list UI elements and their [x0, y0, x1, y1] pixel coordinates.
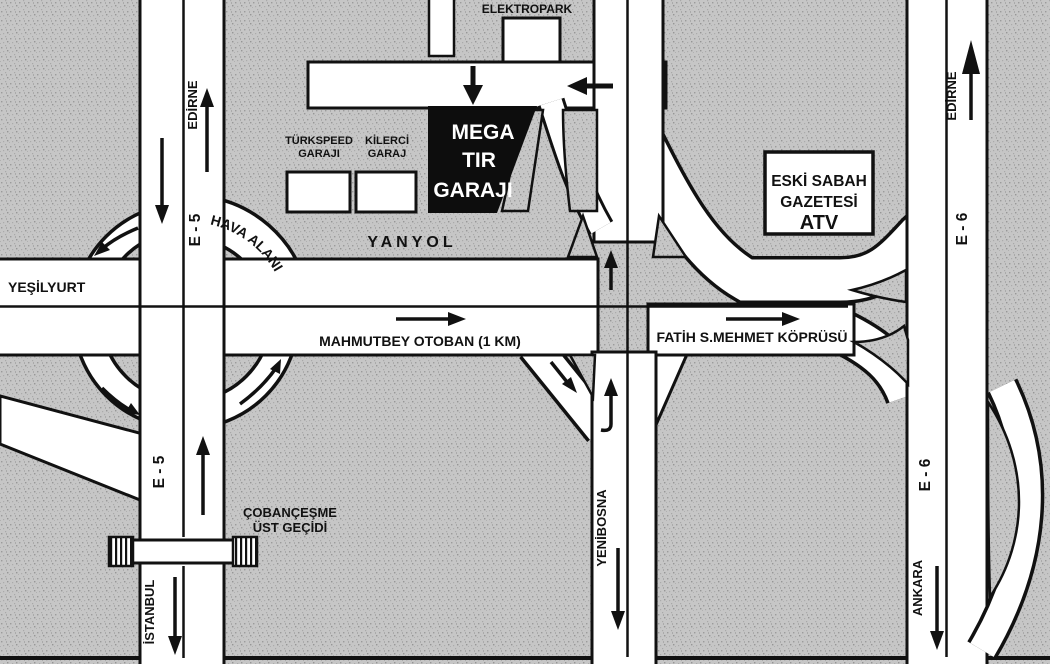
label-eski-2: GAZETESİ — [780, 194, 858, 211]
label-e5-lower: E - 5 — [151, 455, 168, 488]
label-e6-lower: E - 6 — [917, 458, 934, 491]
label-tir: TIR — [462, 149, 496, 172]
elektropark-building — [503, 18, 560, 62]
label-edirne-e6: EDİRNE — [944, 71, 959, 120]
map-canvas: ELEKTROPARK TÜRKSPEED GARAJI KİLERCİ GAR… — [0, 0, 1050, 664]
road-map-drawing: ELEKTROPARK TÜRKSPEED GARAJI KİLERCİ GAR… — [0, 0, 1050, 664]
label-eski-3: ATV — [800, 212, 839, 234]
label-yenibosna: YENİBOSNA — [594, 489, 609, 567]
label-cobancesme-1: ÇOBANÇEŞME — [243, 505, 337, 520]
label-edirne-e5: EDİRNE — [185, 80, 200, 129]
label-kilerci-1: KİLERCİ — [365, 134, 409, 147]
label-istanbul: İSTANBUL — [142, 580, 157, 645]
cobancesme-overpass — [109, 537, 257, 566]
label-elektropark: ELEKTROPARK — [482, 2, 573, 16]
label-yanyol: YANYOL — [367, 234, 456, 251]
top-edge-road-stub — [429, 0, 454, 56]
label-yesilyurt: YEŞİLYURT — [8, 279, 86, 295]
label-garaji: GARAJI — [433, 179, 512, 202]
kilerci-building — [356, 172, 416, 212]
label-fatih: FATİH S.MEHMET KÖPRÜSÜ — [656, 329, 847, 345]
turkspeed-building — [287, 172, 350, 212]
label-mahmutbey: MAHMUTBEY OTOBAN (1 KM) — [319, 333, 521, 349]
label-mega: MEGA — [452, 121, 515, 144]
label-turkspeed-2: GARAJI — [298, 148, 340, 160]
label-ankara: ANKARA — [910, 559, 925, 616]
label-eski-1: ESKİ SABAH — [771, 173, 867, 190]
label-turkspeed-1: TÜRKSPEED — [285, 134, 353, 147]
label-cobancesme-2: ÜST GEÇİDİ — [253, 520, 327, 535]
label-e5-upper: E - 5 — [187, 213, 204, 246]
label-kilerci-2: GARAJ — [368, 148, 407, 160]
label-e6-upper: E - 6 — [954, 212, 971, 245]
